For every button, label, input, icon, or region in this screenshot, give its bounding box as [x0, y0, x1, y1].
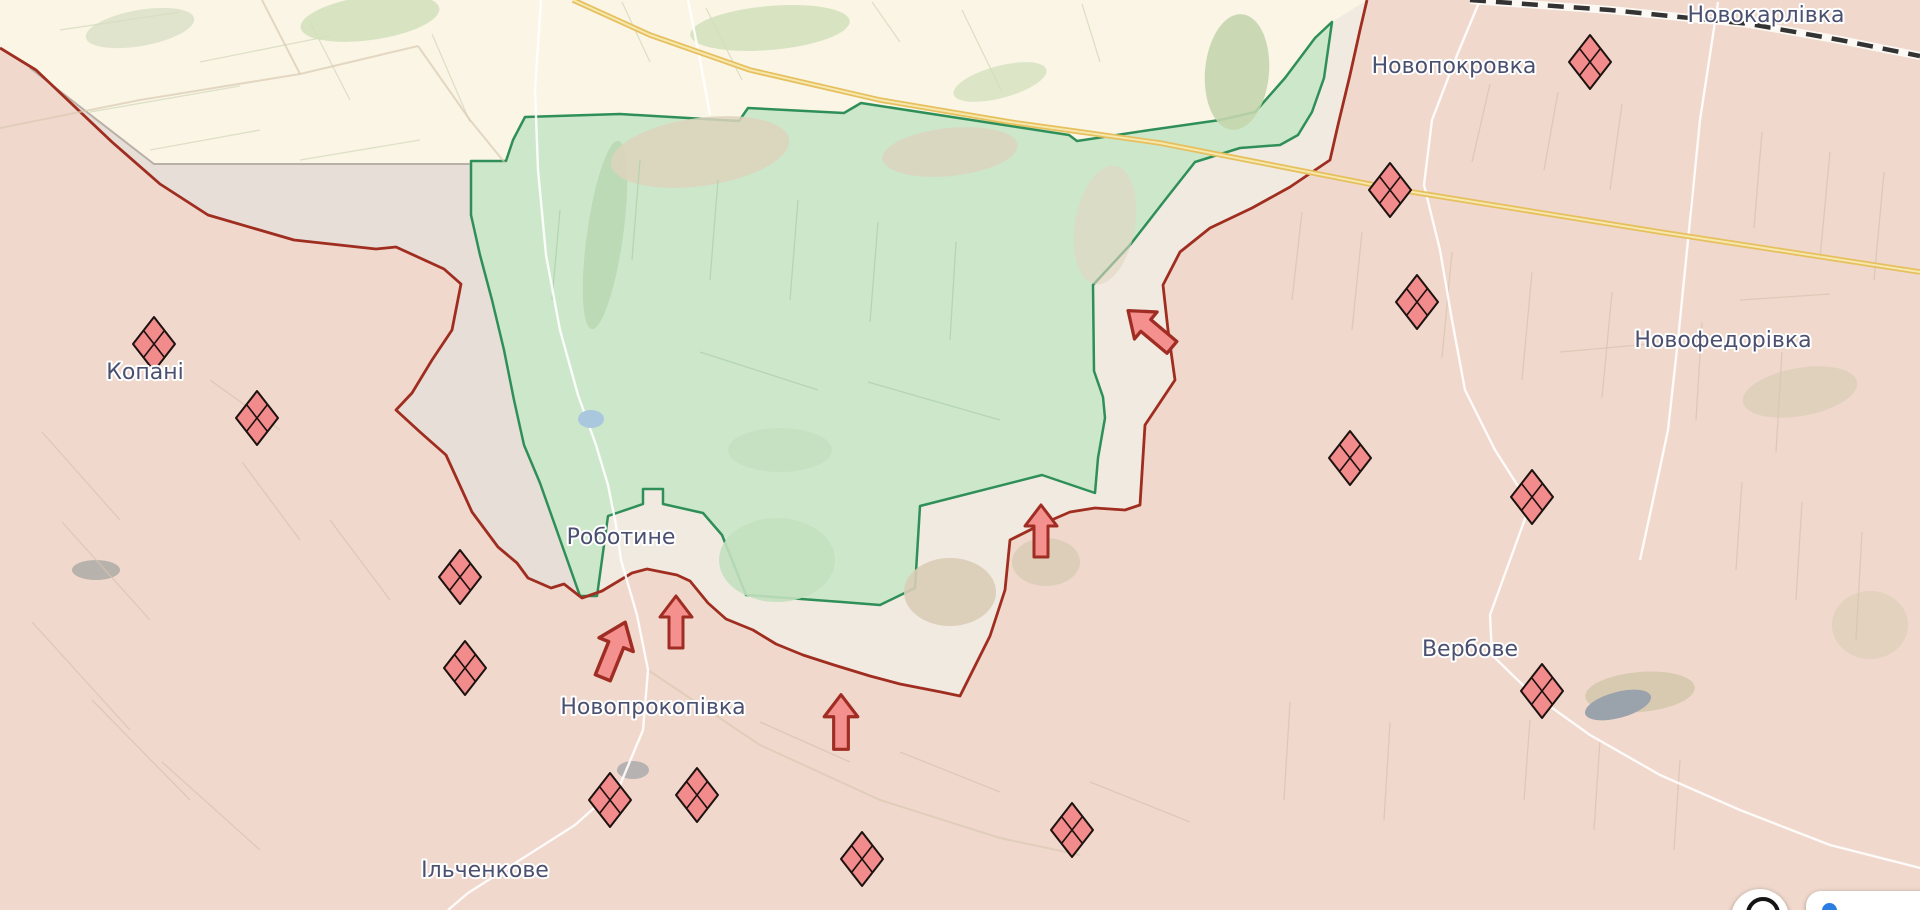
terrain-patch	[1832, 591, 1908, 659]
circle-tool-icon	[1746, 897, 1780, 910]
place-label: Новофедорівка	[1634, 328, 1811, 353]
place-label: Вербове	[1422, 637, 1518, 662]
terrain-patch	[719, 518, 835, 602]
map-stage: НовокарлівкаНовопокровкаНовофедорівкаКоп…	[0, 0, 1920, 910]
place-label: Новопокровка	[1372, 54, 1537, 79]
attribution-pill[interactable]	[1806, 891, 1920, 910]
terrain-patch	[72, 560, 120, 580]
terrain-patch	[617, 761, 649, 779]
place-label: Новопрокопівка	[560, 695, 745, 720]
terrain-patch	[728, 428, 832, 472]
pond	[578, 410, 604, 428]
place-label: Копані	[106, 360, 183, 385]
terrain-patch	[904, 558, 996, 626]
map-canvas[interactable]: НовокарлівкаНовопокровкаНовофедорівкаКоп…	[0, 0, 1920, 910]
place-label: Ільченкове	[421, 858, 549, 883]
place-label: Роботине	[567, 525, 676, 550]
place-label: Новокарлівка	[1687, 3, 1844, 28]
info-icon	[1822, 903, 1837, 910]
